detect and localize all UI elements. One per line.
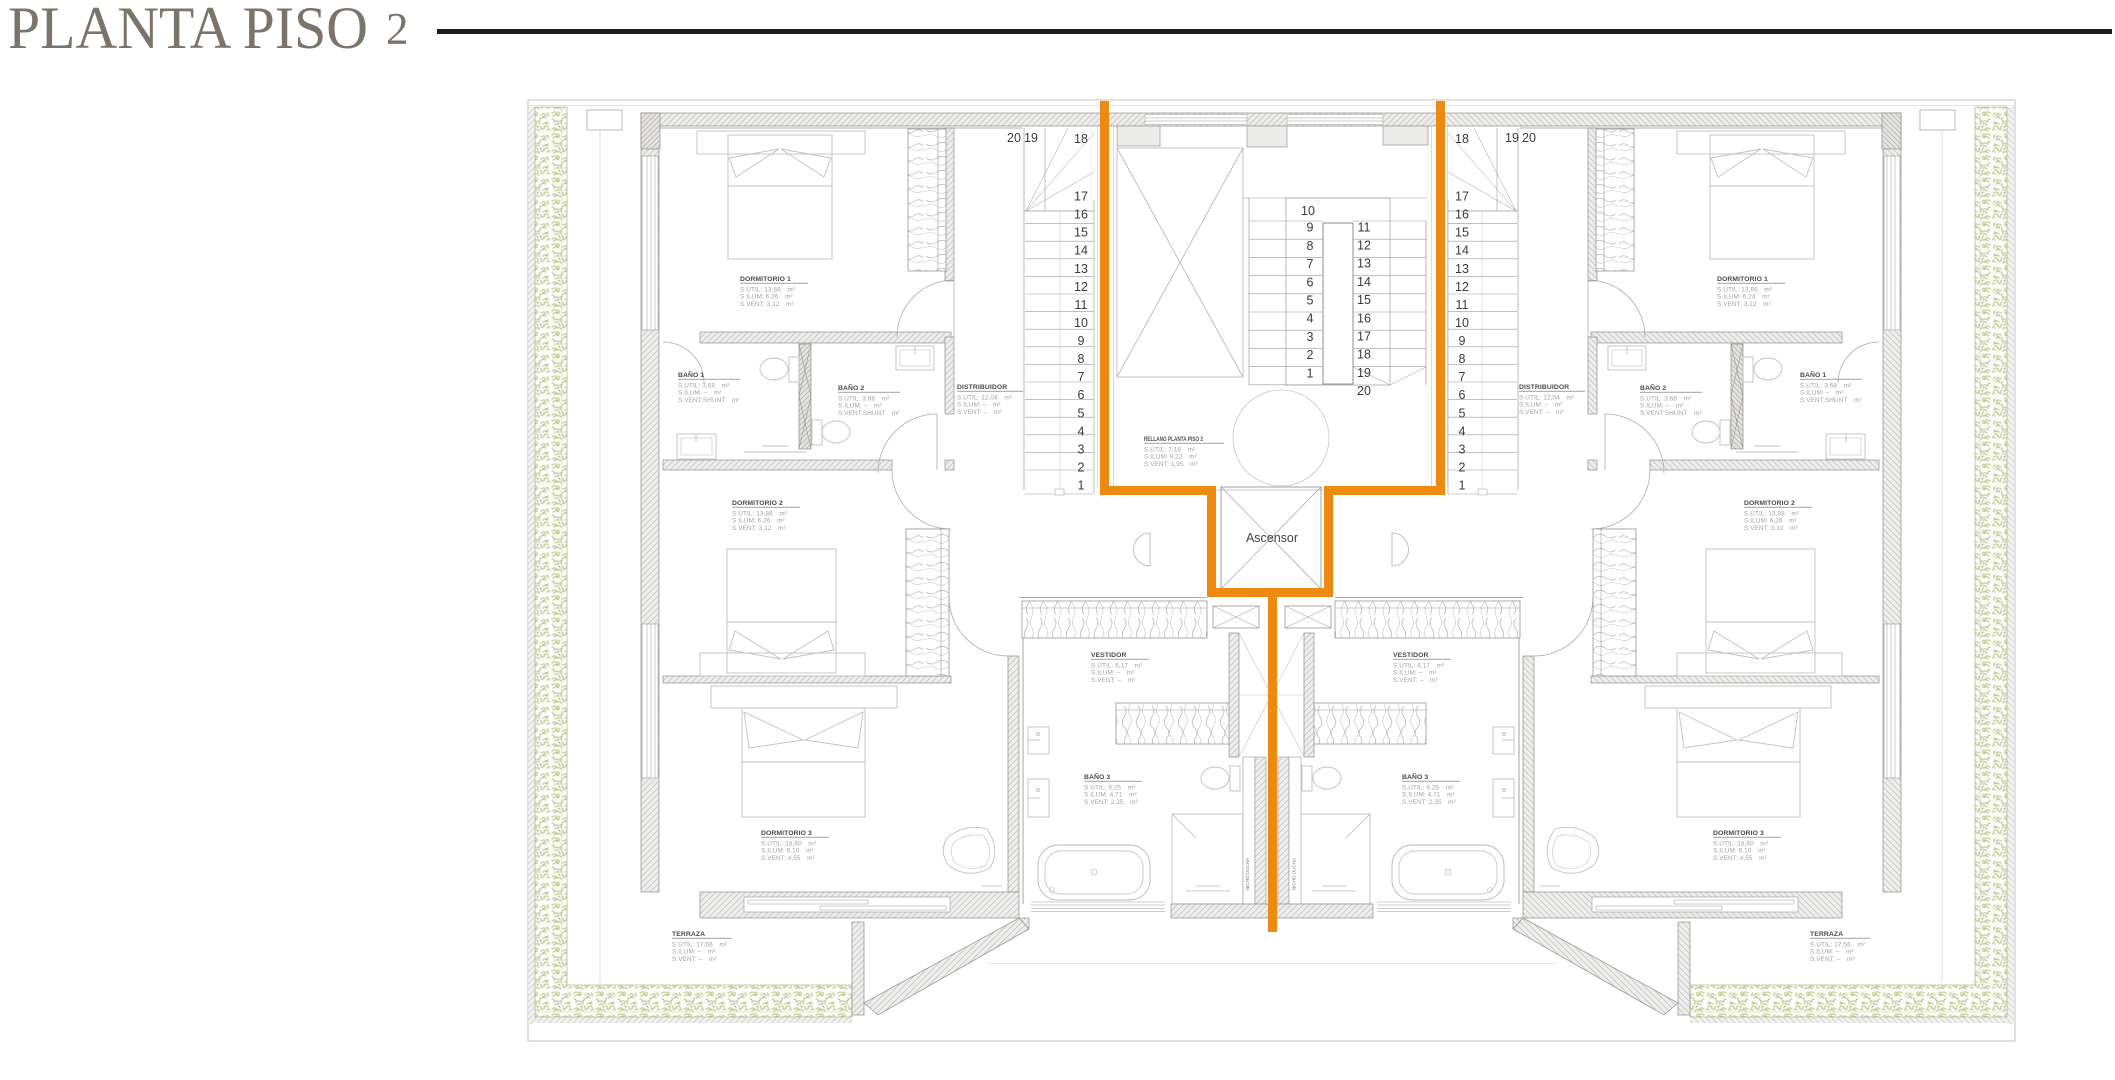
svg-text:S.ÚTIL: 3,68 m²: S.ÚTIL: 3,68 m² (1800, 381, 1851, 390)
svg-text:20: 20 (1007, 131, 1021, 145)
svg-text:6: 6 (1078, 388, 1085, 402)
svg-text:8: 8 (1078, 352, 1085, 366)
svg-text:S.ILUM: 6,26 m²: S.ILUM: 6,26 m² (1744, 518, 1797, 525)
svg-text:1: 1 (1459, 479, 1466, 493)
svg-text:4: 4 (1078, 424, 1085, 438)
svg-text:9: 9 (1459, 334, 1466, 348)
svg-text:13: 13 (1455, 262, 1469, 276)
svg-text:17: 17 (1357, 330, 1371, 344)
svg-text:7: 7 (1459, 370, 1466, 384)
svg-text:18: 18 (1357, 348, 1371, 362)
svg-text:5: 5 (1459, 406, 1466, 420)
svg-text:18: 18 (1074, 132, 1088, 146)
svg-text:S.ÚTIL: 9,25 m²: S.ÚTIL: 9,25 m² (1402, 783, 1453, 792)
svg-text:S.ILUM: 9,22 m²: S.ILUM: 9,22 m² (1144, 454, 1197, 461)
svg-text:S.ÚTIL: 9,25 m²: S.ÚTIL: 9,25 m² (1084, 783, 1135, 792)
svg-text:19: 19 (1357, 366, 1371, 380)
svg-text:S.VENT: 4,55 m²: S.VENT: 4,55 m² (761, 855, 815, 862)
svg-text:6: 6 (1459, 388, 1466, 402)
svg-text:S.VENT: 1,95 m²: S.VENT: 1,95 m² (1144, 461, 1198, 468)
svg-text:14: 14 (1455, 244, 1469, 258)
svg-text:S.VENT: 3,12 m²: S.VENT: 3,12 m² (740, 301, 794, 308)
svg-text:DORMITORIO 3: DORMITORIO 3 (1713, 830, 1764, 837)
svg-text:1: 1 (1078, 479, 1085, 493)
svg-text:15: 15 (1455, 226, 1469, 240)
svg-text:BAÑO 2: BAÑO 2 (1640, 383, 1666, 392)
svg-text:TERRAZA: TERRAZA (672, 931, 705, 938)
svg-text:12: 12 (1455, 280, 1469, 294)
svg-text:14: 14 (1357, 275, 1371, 289)
svg-text:S.ILUM: – m²: S.ILUM: – m² (957, 402, 1001, 409)
svg-text:10: 10 (1074, 316, 1088, 330)
svg-text:PLANTA PISO: PLANTA PISO (8, 0, 368, 61)
svg-text:16: 16 (1074, 208, 1088, 222)
svg-text:2: 2 (1307, 348, 1314, 362)
svg-text:S.ILUM: – m²: S.ILUM: – m² (1800, 390, 1844, 397)
svg-text:S.ILUM: 4,71 m²: S.ILUM: 4,71 m² (1084, 792, 1137, 799)
svg-text:S.ÚTIL: 13,88 m²: S.ÚTIL: 13,88 m² (732, 509, 787, 518)
svg-text:S.ILUM: – m²: S.ILUM: – m² (678, 390, 722, 397)
svg-text:12: 12 (1357, 239, 1371, 253)
svg-text:S.ILUM: – m²: S.ILUM: – m² (1640, 403, 1684, 410)
svg-text:S.ÚTIL: 13,66 m²: S.ÚTIL: 13,66 m² (1717, 285, 1772, 294)
svg-text:5: 5 (1078, 406, 1085, 420)
svg-text:DORMITORIO 1: DORMITORIO 1 (740, 276, 791, 283)
svg-text:S.VENT:SHUNT m²: S.VENT:SHUNT m² (678, 397, 740, 404)
svg-text:8: 8 (1307, 239, 1314, 253)
svg-text:S.ILUM: 6,26 m²: S.ILUM: 6,26 m² (732, 518, 785, 525)
svg-text:10: 10 (1455, 316, 1469, 330)
svg-text:11: 11 (1075, 298, 1088, 312)
svg-text:DISTRIBUIDOR: DISTRIBUIDOR (957, 384, 1007, 391)
svg-text:6: 6 (1307, 275, 1314, 289)
svg-text:S.VENT: – m²: S.VENT: – m² (1091, 677, 1136, 684)
svg-text:VESTIDOR: VESTIDOR (1091, 652, 1127, 659)
svg-text:2: 2 (1459, 460, 1466, 474)
svg-text:7: 7 (1307, 257, 1314, 271)
svg-text:S.ILUM: – m²: S.ILUM: – m² (1091, 670, 1135, 677)
svg-text:18: 18 (1455, 132, 1469, 146)
svg-text:19: 19 (1024, 131, 1038, 145)
svg-text:DORMITORIO 2: DORMITORIO 2 (1744, 500, 1795, 507)
svg-text:S.ÚTIL: 7,18 m²: S.ÚTIL: 7,18 m² (1144, 445, 1195, 454)
svg-text:15: 15 (1074, 226, 1088, 240)
svg-text:8: 8 (1459, 352, 1466, 366)
svg-text:S.ÚTIL: 18,60 m²: S.ÚTIL: 18,60 m² (761, 839, 816, 848)
svg-text:3: 3 (1078, 442, 1085, 456)
svg-text:1: 1 (1307, 366, 1314, 380)
svg-text:S.ÚTIL: 12,04 m²: S.ÚTIL: 12,04 m² (957, 393, 1012, 402)
svg-text:VESTIDOR: VESTIDOR (1393, 652, 1429, 659)
svg-text:20: 20 (1357, 384, 1371, 398)
svg-text:S.VENT: – m²: S.VENT: – m² (957, 409, 1002, 416)
svg-text:9: 9 (1078, 334, 1085, 348)
svg-text:TERRAZA: TERRAZA (1810, 931, 1843, 938)
svg-text:S.ILUM: 6,24 m²: S.ILUM: 6,24 m² (1717, 294, 1770, 301)
svg-text:NICHO DUCHA: NICHO DUCHA (1292, 857, 1297, 890)
svg-text:S.ÚTIL: 18,60 m²: S.ÚTIL: 18,60 m² (1713, 839, 1768, 848)
svg-text:19: 19 (1505, 131, 1519, 145)
svg-text:7: 7 (1078, 370, 1085, 384)
svg-text:S.ÚTIL: 12,04 m²: S.ÚTIL: 12,04 m² (1519, 393, 1574, 402)
svg-text:DORMITORIO 2: DORMITORIO 2 (732, 500, 783, 507)
svg-text:S.ÚTIL: 3,68 m²: S.ÚTIL: 3,68 m² (838, 394, 889, 403)
svg-text:20: 20 (1522, 131, 1536, 145)
svg-text:17: 17 (1455, 190, 1469, 204)
svg-text:S.VENT: – m²: S.VENT: – m² (672, 956, 717, 963)
svg-text:DORMITORIO 1: DORMITORIO 1 (1717, 276, 1768, 283)
svg-text:S.ÚTIL: 6,17 m²: S.ÚTIL: 6,17 m² (1091, 661, 1142, 670)
svg-text:S.VENT: 2,35 m²: S.VENT: 2,35 m² (1402, 799, 1456, 806)
svg-text:5: 5 (1307, 294, 1314, 308)
svg-text:S.ÚTIL: 13,66 m²: S.ÚTIL: 13,66 m² (740, 285, 795, 294)
svg-text:BAÑO 1: BAÑO 1 (1800, 370, 1826, 379)
svg-text:S.VENT: – m²: S.VENT: – m² (1810, 956, 1855, 963)
svg-text:S.ÚTIL: 17,56 m²: S.ÚTIL: 17,56 m² (1810, 940, 1865, 949)
svg-text:S.ÚTIL: 13,88 m²: S.ÚTIL: 13,88 m² (1744, 509, 1799, 518)
svg-text:14: 14 (1074, 244, 1088, 258)
svg-text:11: 11 (1456, 298, 1469, 312)
svg-text:S.ILUM: – m²: S.ILUM: – m² (838, 403, 882, 410)
svg-text:S.ILUM: 4,71 m²: S.ILUM: 4,71 m² (1402, 792, 1455, 799)
svg-text:S.ÚTIL: 17,56 m²: S.ÚTIL: 17,56 m² (672, 940, 727, 949)
svg-text:S.VENT: 2,35 m²: S.VENT: 2,35 m² (1084, 799, 1138, 806)
svg-text:S.VENT: 3,12 m²: S.VENT: 3,12 m² (732, 525, 786, 532)
svg-text:S.ILUM: – m²: S.ILUM: – m² (1519, 402, 1563, 409)
svg-text:11: 11 (1358, 220, 1371, 234)
svg-text:12: 12 (1074, 280, 1088, 294)
svg-text:13: 13 (1074, 262, 1088, 276)
svg-text:Ascensor: Ascensor (1246, 531, 1298, 545)
svg-text:3: 3 (1307, 330, 1314, 344)
svg-text:S.ÚTIL: 6,17 m²: S.ÚTIL: 6,17 m² (1393, 661, 1444, 670)
svg-text:RELLANO PLANTA PISO 2: RELLANO PLANTA PISO 2 (1144, 436, 1203, 443)
svg-text:S.VENT:SHUNT m²: S.VENT:SHUNT m² (1800, 397, 1862, 404)
svg-text:2: 2 (1078, 460, 1085, 474)
svg-text:4: 4 (1307, 312, 1314, 326)
svg-text:DISTRIBUIDOR: DISTRIBUIDOR (1519, 384, 1569, 391)
svg-text:S.VENT: – m²: S.VENT: – m² (1519, 409, 1564, 416)
svg-text:17: 17 (1074, 190, 1088, 204)
svg-text:4: 4 (1459, 424, 1466, 438)
svg-text:S.ILUM: 9,10 m²: S.ILUM: 9,10 m² (1713, 848, 1766, 855)
svg-text:BAÑO 3: BAÑO 3 (1084, 772, 1110, 781)
svg-text:S.ÚTIL: 3,68 m²: S.ÚTIL: 3,68 m² (678, 381, 729, 390)
svg-text:S.ILUM: 6,26 m²: S.ILUM: 6,26 m² (740, 294, 793, 301)
svg-text:S.ILUM: – m²: S.ILUM: – m² (1810, 949, 1854, 956)
svg-text:S.VENT: – m²: S.VENT: – m² (1393, 677, 1438, 684)
svg-text:DORMITORIO 3: DORMITORIO 3 (761, 830, 812, 837)
svg-text:16: 16 (1455, 208, 1469, 222)
svg-text:S.ILUM: – m²: S.ILUM: – m² (1393, 670, 1437, 677)
svg-text:S.ÚTIL: 3,68 m²: S.ÚTIL: 3,68 m² (1640, 394, 1691, 403)
svg-text:13: 13 (1357, 257, 1371, 271)
svg-text:S.VENT:SHUNT m²: S.VENT:SHUNT m² (838, 410, 900, 417)
svg-text:S.VENT: 4,55 m²: S.VENT: 4,55 m² (1713, 855, 1767, 862)
svg-text:S.ILUM: 9,10 m²: S.ILUM: 9,10 m² (761, 848, 814, 855)
svg-text:3: 3 (1459, 442, 1466, 456)
svg-text:BAÑO 1: BAÑO 1 (678, 370, 704, 379)
svg-text:2: 2 (386, 4, 409, 54)
svg-text:S.ILUM: – m²: S.ILUM: – m² (672, 949, 716, 956)
svg-text:16: 16 (1357, 311, 1371, 325)
svg-text:NICHO DUCHA: NICHO DUCHA (1245, 857, 1250, 890)
svg-text:S.VENT: 3,12 m²: S.VENT: 3,12 m² (1717, 301, 1771, 308)
svg-text:10: 10 (1301, 204, 1315, 218)
svg-text:BAÑO 2: BAÑO 2 (838, 383, 864, 392)
svg-text:BAÑO 3: BAÑO 3 (1402, 772, 1428, 781)
svg-text:15: 15 (1357, 293, 1371, 307)
svg-text:S.VENT: 3,12 m²: S.VENT: 3,12 m² (1744, 525, 1798, 532)
svg-text:S.VENT:SHUNT m²: S.VENT:SHUNT m² (1640, 410, 1702, 417)
svg-text:9: 9 (1307, 221, 1314, 235)
